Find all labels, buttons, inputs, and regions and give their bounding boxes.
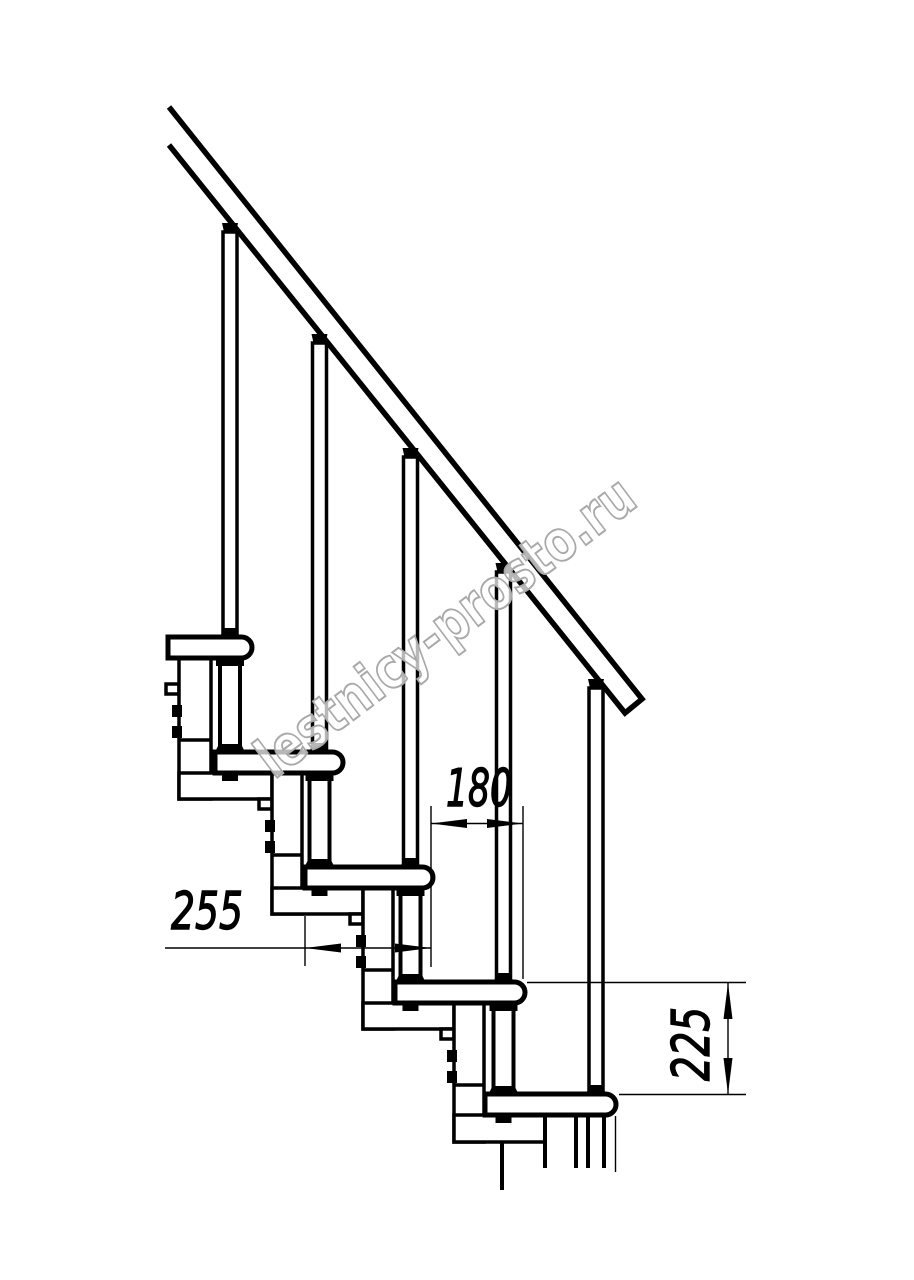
module-flange [166,684,179,694]
bolt-icon [356,935,366,947]
bolt-icon [403,1004,419,1011]
nose-post-3 [401,888,421,982]
bolt-icon [496,1116,512,1123]
baluster-cap [403,448,419,457]
bolt-icon [447,1071,457,1083]
module-flange [350,914,363,924]
arrow-left-icon [305,944,341,953]
staircase-technical-drawing: 255 180 225 lestnicy-prosto.ru [0,0,914,1280]
baluster-1 [220,223,240,637]
module-flange [441,1029,454,1039]
arrow-up-icon [724,983,733,1019]
dimension-label-225: 225 [662,1007,722,1081]
baluster-5 [586,679,606,1094]
tread-3 [305,867,433,888]
bolt-icon [222,774,238,781]
module-flange [259,799,272,809]
nose-post-4 [494,1003,514,1094]
nose-post-5 [588,1116,604,1168]
bolt-icon [265,841,275,853]
tread-1 [168,637,252,658]
bolt-icon [447,1050,457,1062]
bolt-icon [265,820,275,832]
bolt-icon [312,889,328,896]
nose-post-2 [310,773,330,867]
tread-5 [485,1094,616,1115]
baluster-cap [222,223,238,232]
nose-post-1 [220,658,240,752]
baluster-cap [588,679,604,688]
baluster-cap [312,334,328,343]
bolt-icon [172,726,182,738]
tread-4 [395,982,525,1003]
bolt-icon [172,705,182,717]
dimension-label-180: 180 [446,759,512,819]
arrow-down-icon [724,1058,733,1094]
dimension-225-step-rise: 225 [527,983,746,1173]
bolt-icon [356,956,366,968]
arrow-left-icon [431,819,467,828]
dimension-label-255: 255 [171,882,243,942]
